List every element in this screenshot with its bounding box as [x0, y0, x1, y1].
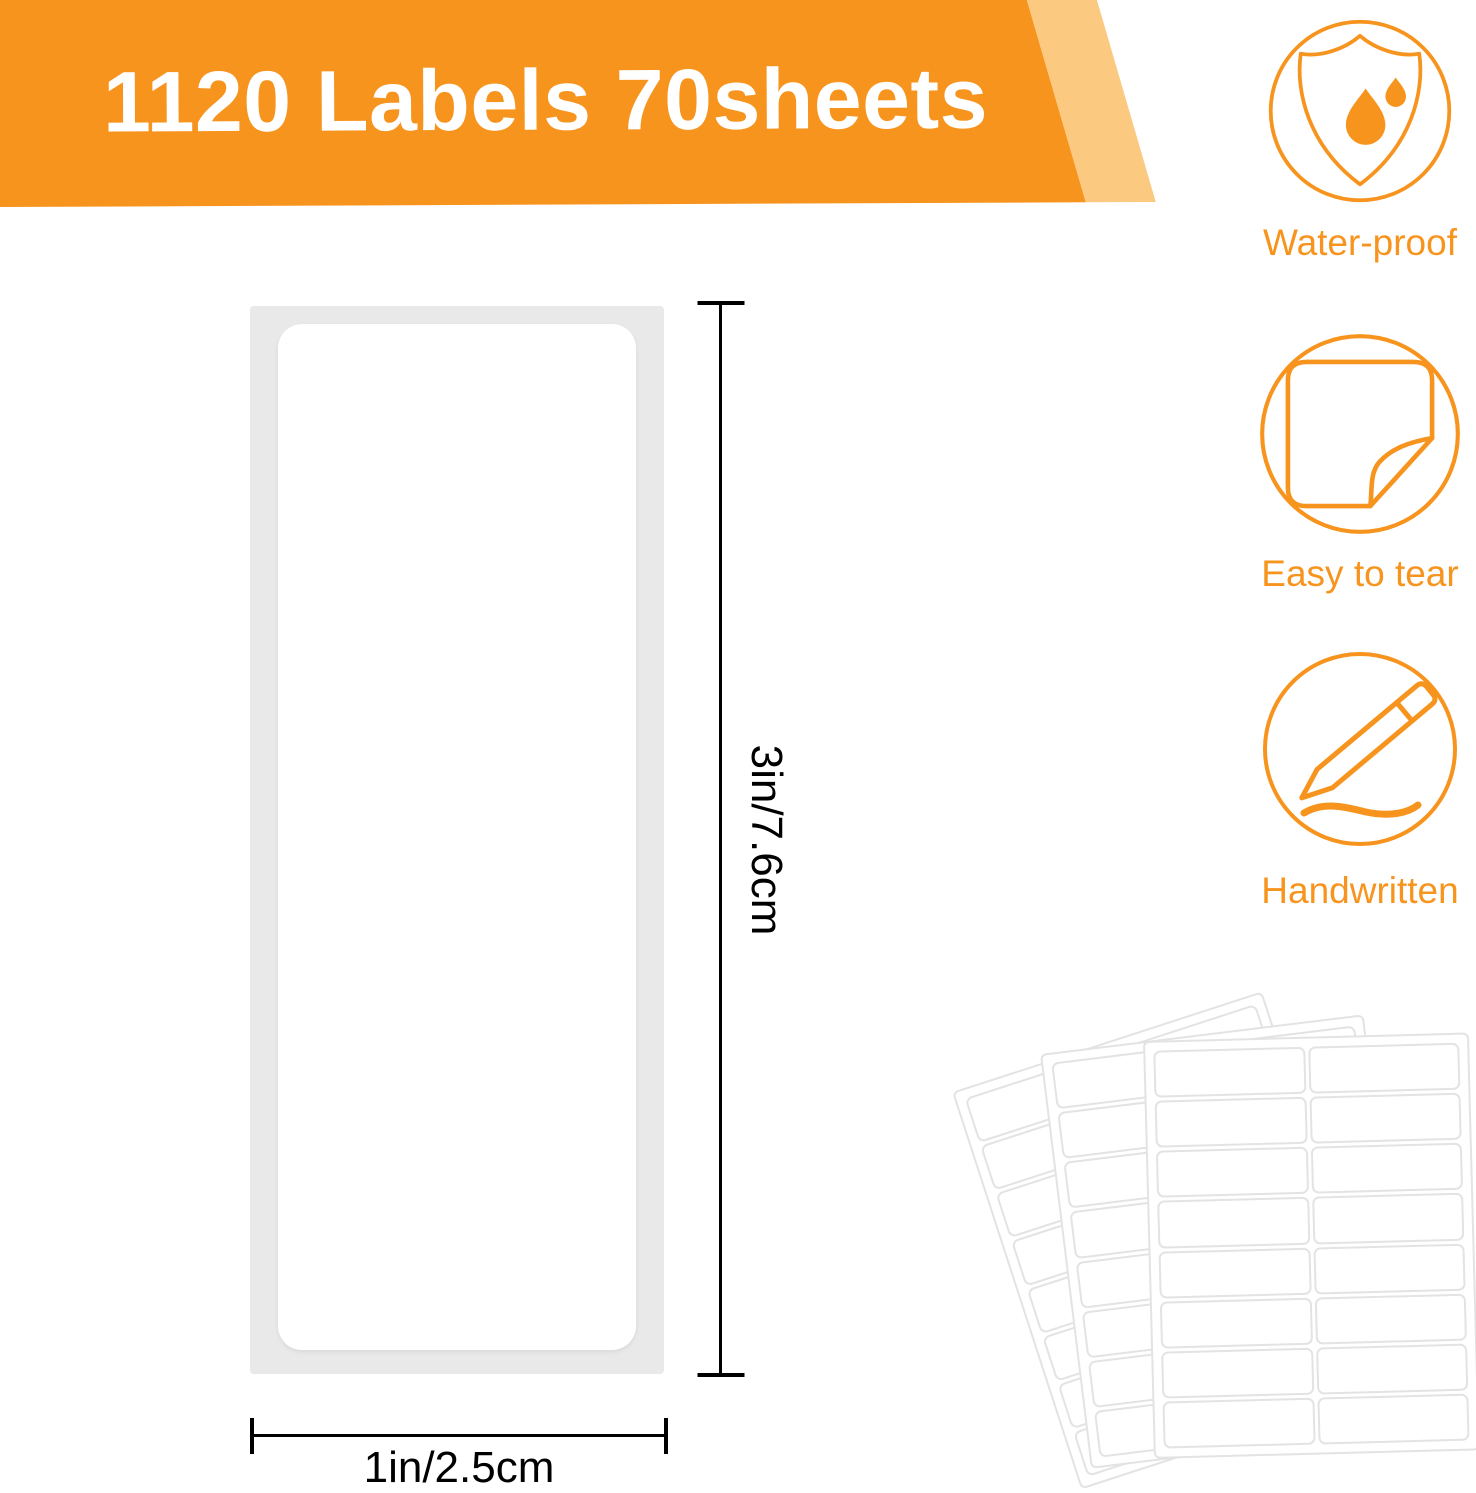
label-cell	[1155, 1097, 1308, 1148]
label-cell	[1153, 1047, 1306, 1098]
height-dimension-line	[719, 303, 722, 1375]
width-dimension-label: 1in/2.5cm	[364, 1443, 555, 1493]
label-cell	[1316, 1343, 1469, 1394]
banner-title: 1120 Labels 70sheets	[103, 56, 988, 146]
waterproof-shield-icon	[1266, 17, 1454, 205]
feature-label: Easy to tear	[1261, 553, 1458, 596]
feature-easy-to-tear: Easy to tear	[1254, 331, 1466, 596]
sticker-peel-icon	[1257, 331, 1463, 537]
label-cell	[1314, 1293, 1467, 1344]
pencil-writing-icon	[1260, 649, 1460, 849]
label-cell	[1161, 1347, 1314, 1398]
label-cell	[1313, 1243, 1466, 1294]
label-sheet-front	[1143, 1032, 1476, 1458]
label-cell	[1312, 1193, 1465, 1244]
label-cell	[1156, 1147, 1309, 1198]
feature-water-proof: Water-proof	[1254, 17, 1466, 265]
label-backing-sheet	[250, 306, 664, 1374]
label-cell	[1309, 1093, 1462, 1144]
width-dimension-line	[252, 1434, 666, 1437]
feature-label: Water-proof	[1263, 222, 1457, 265]
label-cell	[1162, 1398, 1315, 1449]
feature-label: Handwritten	[1261, 870, 1458, 913]
label-cell	[1157, 1197, 1310, 1248]
label-cell	[1159, 1247, 1312, 1298]
height-dimension-label: 3in/7.6cm	[741, 745, 791, 936]
feature-handwritten: Handwritten	[1254, 649, 1466, 913]
label-sticker	[278, 324, 636, 1350]
label-cell	[1317, 1393, 1470, 1444]
label-cell	[1160, 1297, 1313, 1348]
label-cell	[1308, 1043, 1461, 1094]
label-cell	[1310, 1143, 1463, 1194]
